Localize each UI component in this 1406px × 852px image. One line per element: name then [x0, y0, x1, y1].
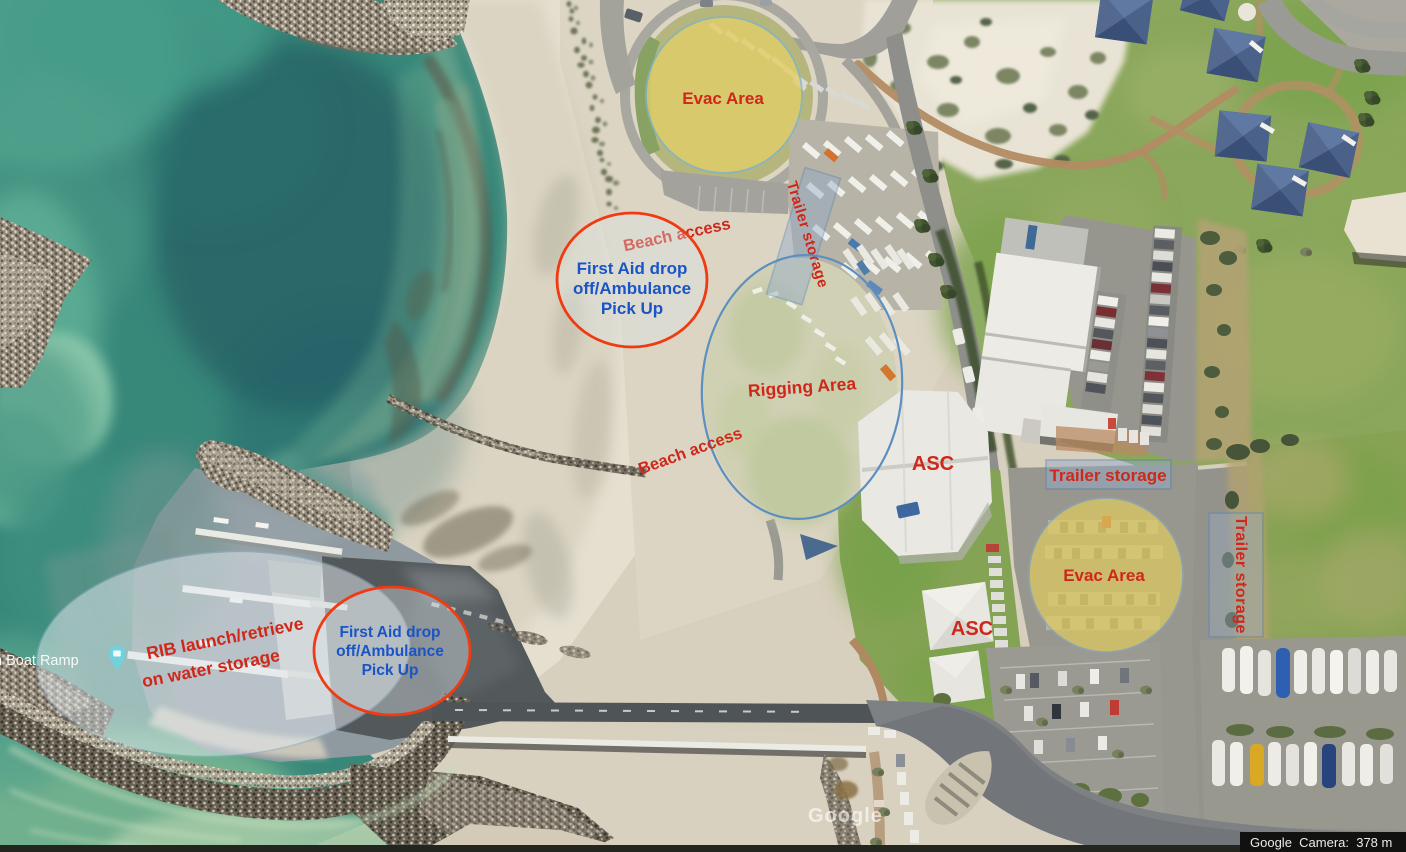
svg-text:Google: Google: [808, 805, 883, 827]
svg-text:Evac Area: Evac Area: [682, 89, 764, 108]
svg-text:Evac Area: Evac Area: [1063, 566, 1145, 585]
svg-text:Pick Up: Pick Up: [601, 299, 663, 318]
svg-text:ASC: ASC: [951, 618, 993, 640]
svg-text:First Aid drop: First Aid drop: [577, 259, 688, 278]
svg-text:off/Ambulance: off/Ambulance: [573, 279, 691, 298]
svg-text:ASC: ASC: [912, 453, 954, 475]
svg-text:Trailer storage: Trailer storage: [1232, 516, 1249, 634]
svg-text:Trailer storage: Trailer storage: [1049, 466, 1166, 485]
svg-text:n Boat Ramp: n Boat Ramp: [0, 653, 79, 669]
svg-text:off/Ambulance: off/Ambulance: [336, 643, 444, 660]
svg-text:Google Camera: 378 m: Google Camera: 378 m: [1250, 835, 1392, 850]
svg-text:Pick Up: Pick Up: [362, 662, 419, 679]
svg-text:First Aid drop: First Aid drop: [339, 624, 440, 641]
